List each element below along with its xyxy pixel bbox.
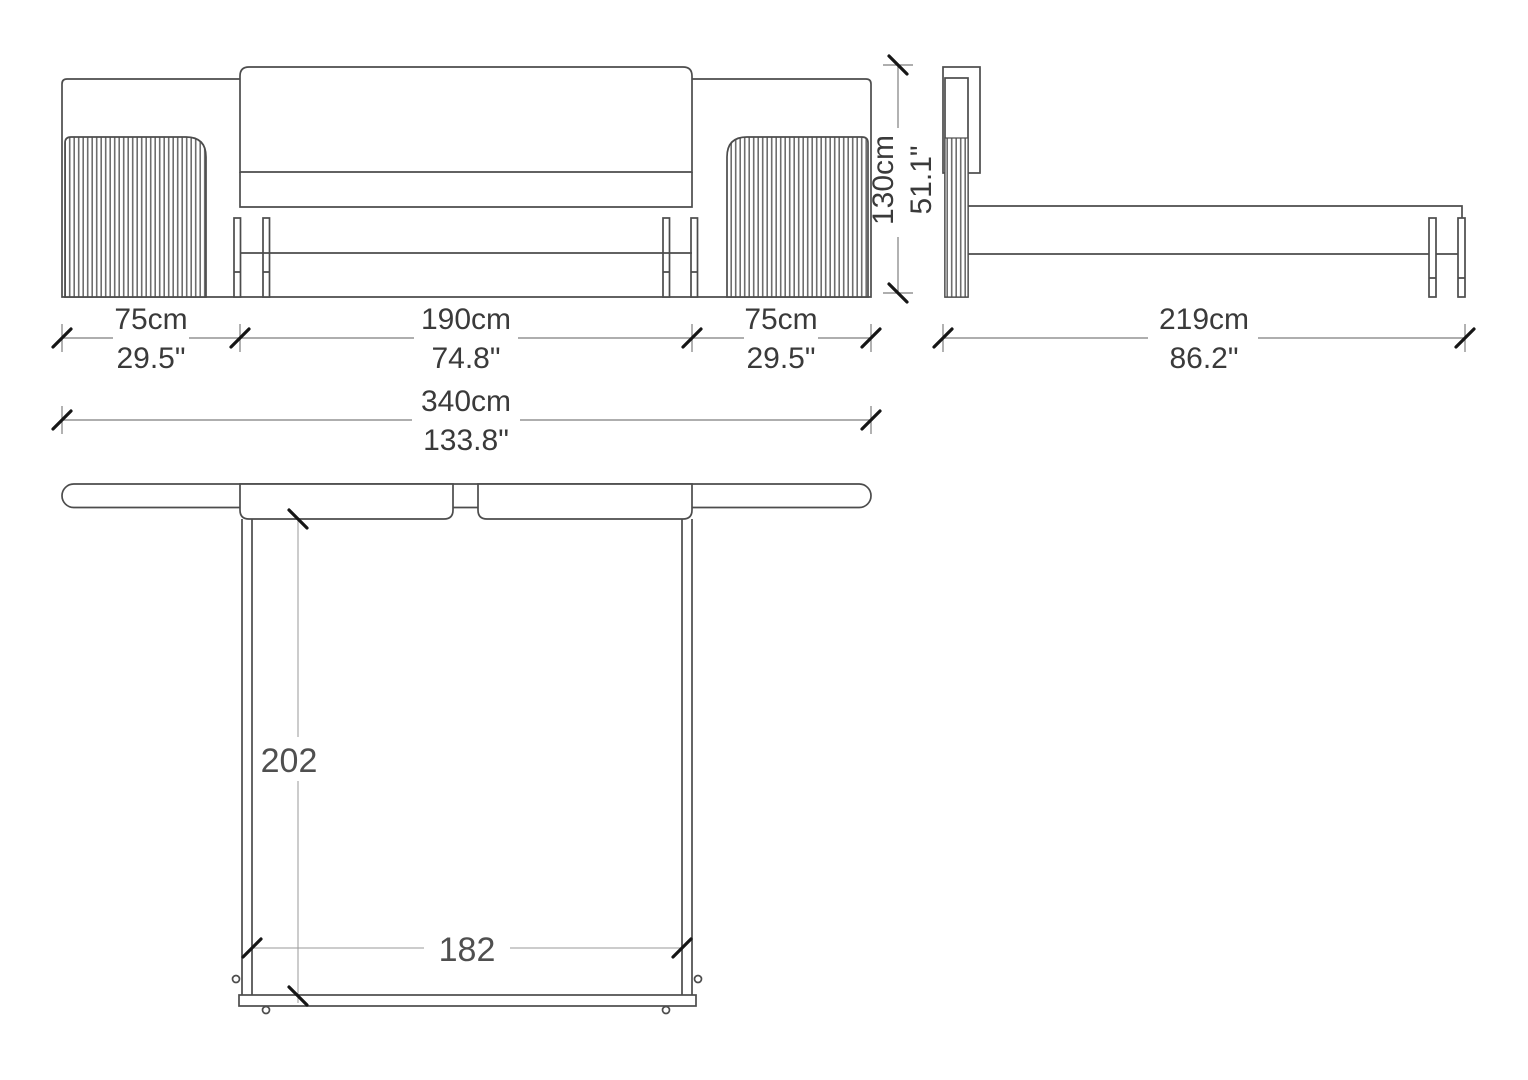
dim-plan-length: 202 [261, 742, 318, 780]
foot-glide [233, 976, 240, 983]
dim-plan-width: 182 [439, 931, 496, 969]
dim-height-cm: 130cm [867, 135, 900, 225]
leg [691, 218, 698, 297]
dim-plan-width: 182 [243, 931, 691, 969]
plan-cushion-left [240, 484, 453, 519]
side-fluted-profile [945, 138, 968, 297]
foot-glide [263, 1007, 270, 1014]
side-view [943, 67, 1465, 297]
dim-front-left-cm: 75cm [114, 303, 187, 336]
dim-depth-inch: 86.2" [1169, 342, 1238, 375]
bed-dimension-drawing: 75cm 29.5" 190cm 74.8" 75cm 29.5" 340cm … [0, 0, 1528, 1080]
plan-cushion-right [478, 484, 692, 519]
dim-total-inch: 133.8" [423, 424, 509, 457]
plan-headboard-bar [62, 484, 871, 508]
foot-glide [695, 976, 702, 983]
leg [263, 218, 270, 297]
leg [663, 218, 670, 297]
dim-total-cm: 340cm [421, 385, 511, 418]
fluted-panel-left [65, 137, 206, 297]
dim-front-right-inch: 29.5" [746, 342, 815, 375]
dim-height: 130cm 51.1" [867, 56, 938, 302]
dim-plan-length: 202 [261, 510, 318, 1005]
dim-height-inch: 51.1" [905, 145, 938, 214]
side-platform [968, 206, 1462, 254]
dim-front-center-inch: 74.8" [431, 342, 500, 375]
leg [234, 218, 241, 297]
front-view [62, 67, 871, 297]
leg [1458, 218, 1465, 297]
leg [1429, 218, 1436, 297]
fluted-panel-right [727, 137, 868, 297]
dim-front-total: 340cm 133.8" [53, 385, 880, 457]
dim-front-chain: 75cm 29.5" 190cm 74.8" 75cm 29.5" [53, 303, 880, 375]
side-legs [1429, 218, 1465, 297]
dim-front-right-cm: 75cm [744, 303, 817, 336]
dim-front-center-cm: 190cm [421, 303, 511, 336]
dim-front-left-inch: 29.5" [116, 342, 185, 375]
dim-depth: 219cm 86.2" [934, 303, 1474, 375]
headboard-cushion [240, 67, 692, 172]
dim-depth-cm: 219cm [1159, 303, 1249, 336]
foot-glide [663, 1007, 670, 1014]
